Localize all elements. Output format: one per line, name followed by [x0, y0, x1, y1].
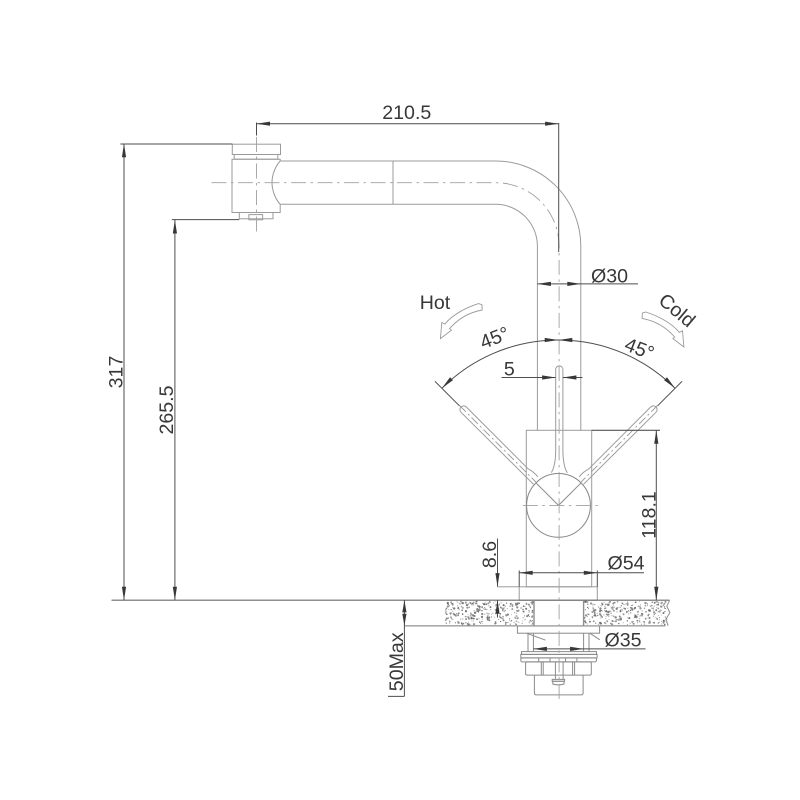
svg-text:5: 5: [504, 359, 515, 381]
svg-text:Ø54: Ø54: [608, 553, 645, 575]
svg-text:Ø35: Ø35: [605, 630, 642, 652]
svg-text:8.6: 8.6: [479, 541, 501, 568]
svg-text:317: 317: [105, 356, 127, 389]
svg-text:Hot: Hot: [420, 292, 451, 314]
svg-text:265.5: 265.5: [156, 385, 178, 434]
svg-text:210.5: 210.5: [382, 102, 431, 124]
svg-text:Ø30: Ø30: [591, 266, 628, 288]
svg-text:118.1: 118.1: [639, 491, 661, 539]
svg-text:50Max: 50Max: [386, 632, 408, 691]
